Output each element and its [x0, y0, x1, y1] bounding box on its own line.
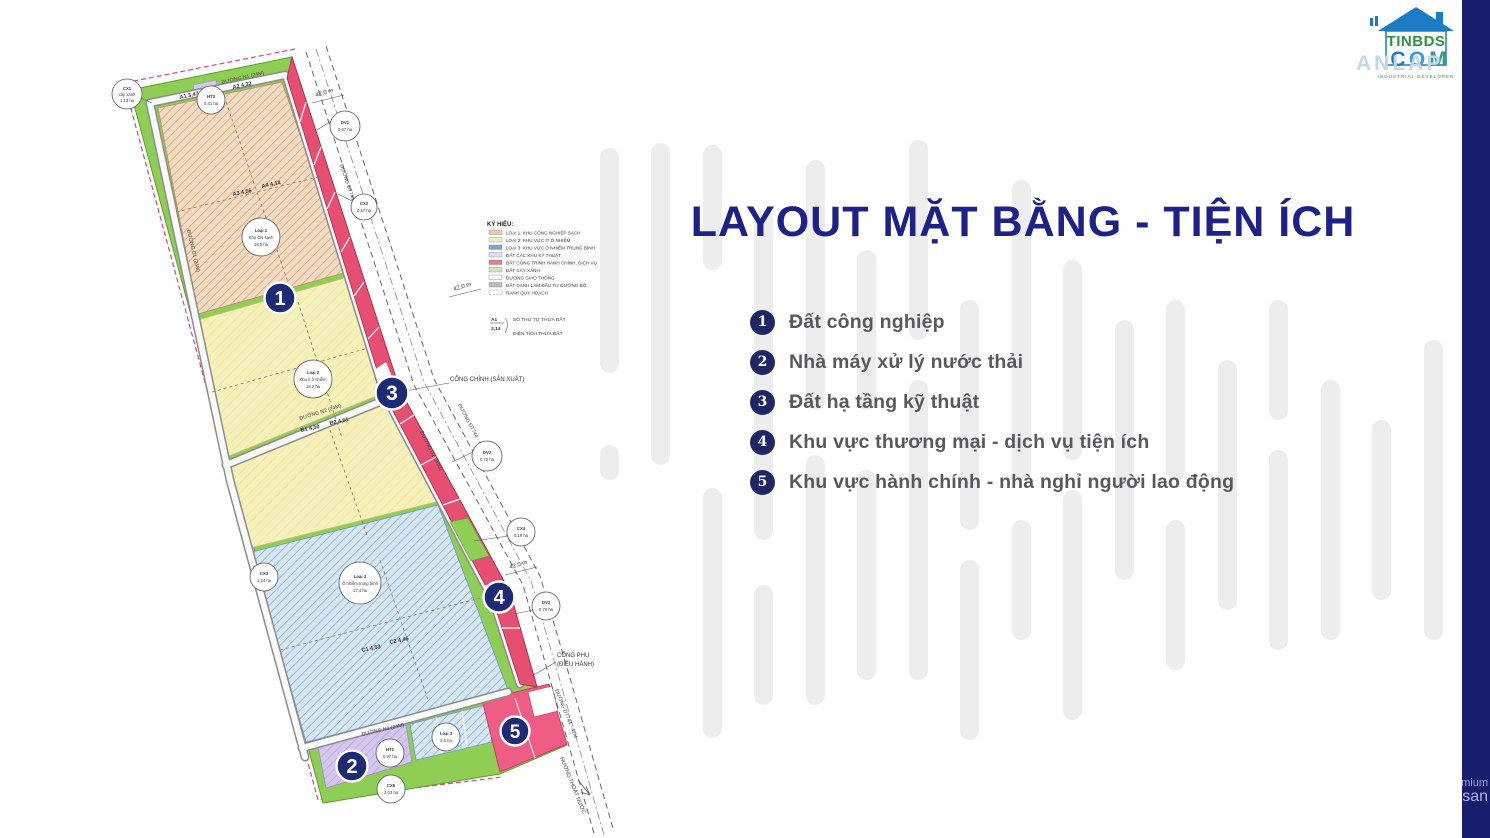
svg-text:CỔNG CHÍNH (SẢN XUẤT): CỔNG CHÍNH (SẢN XUẤT): [450, 376, 524, 383]
svg-text:2: 2: [346, 756, 357, 778]
svg-text:cây xanh: cây xanh: [119, 92, 136, 97]
legend-title: KÝ HIỆU:: [487, 220, 513, 228]
bar: [960, 560, 979, 740]
legend-label: ĐẤT CÂY XANH: [506, 267, 540, 273]
right-navy-bar: [1462, 0, 1490, 838]
bar: [703, 488, 722, 738]
zone-circle-type1: Loại 1 Khu CN sạch 18,5 ha: [242, 218, 280, 256]
svg-text:Loại 2: Loại 2: [307, 370, 320, 375]
list-label: Khu vực thương mại - dịch vụ tiện ích: [789, 431, 1149, 454]
legend-swatch: [489, 253, 502, 258]
svg-text:0,67 ha: 0,67 ha: [338, 127, 353, 132]
svg-text:Loại 3: Loại 3: [354, 574, 367, 579]
map-marker-1: 1: [263, 281, 297, 315]
list-bullet-4: 4: [750, 430, 775, 455]
svg-text:HT3: HT3: [207, 94, 216, 99]
svg-text:CX3: CX3: [260, 571, 269, 576]
callout-dv3: DV3 0,70 ha: [532, 592, 560, 620]
svg-text:DV3: DV3: [542, 600, 551, 605]
page-title: LAYOUT MẶT BẰNG - TIỆN ÍCH: [668, 198, 1378, 247]
svg-text:3,14: 3,14: [491, 326, 501, 332]
svg-text:17,4 ha: 17,4 ha: [353, 588, 368, 593]
list-item: 2 Nhà máy xử lý nước thải: [750, 350, 1234, 374]
tinbds-logo: ANLAP TINBDS C O M INDUSTRIAL DEVELOPER: [1366, 4, 1470, 92]
callout-cx1: CX1 cây xanh 1,13 ha: [112, 79, 142, 109]
map-marker-5: 5: [499, 715, 531, 747]
svg-text:2,03 ha: 2,03 ha: [384, 790, 399, 795]
map-legend: KÝ HIỆU: LOẠI 1: KHU CÔNG NGHIỆP SẠCH LO…: [487, 220, 597, 337]
svg-text:1,24 ha: 1,24 ha: [257, 578, 272, 583]
legend-label: LOẠI 3: KHU VỰC Ô NHIỄM TRUNG BÌNH: [506, 244, 595, 250]
callout-cx5: CX5 2,03 ha: [377, 775, 405, 803]
svg-text:Ô nhiễm trung bình: Ô nhiễm trung bình: [342, 581, 379, 586]
list-item: 4 Khu vực thương mại - dịch vụ tiện ích: [750, 430, 1234, 454]
svg-text:1: 1: [274, 288, 285, 310]
list-bullet-5: 5: [750, 470, 775, 495]
slide: A1 3,47 A2 4,32 A3 4,56 A4 4,14 B1 4,50 …: [0, 0, 1490, 838]
callout-ht3: HT3 0,41 ha: [197, 86, 225, 114]
bar: [1424, 340, 1443, 640]
legend-swatch: [489, 230, 502, 235]
bar: [754, 585, 773, 705]
map-marker-3: 3: [374, 375, 410, 411]
svg-text:0,57 ha: 0,57 ha: [357, 208, 372, 213]
svg-text:Loại 1: Loại 1: [255, 228, 268, 233]
callout-type3-small: Loại 3 2,5 ha: [432, 723, 460, 751]
legend-label: LOẠI 1: KHU CÔNG NGHIỆP SẠCH: [506, 228, 580, 235]
bar: [1166, 520, 1185, 670]
legend-label: ĐƯỜNG GIAO THÔNG: [506, 274, 555, 280]
svg-text:CX1: CX1: [123, 86, 132, 91]
callout-cx3: CX3 1,24 ha: [250, 563, 278, 591]
svg-text:18,2 ha: 18,2 ha: [306, 384, 321, 389]
svg-text:(ĐIỀU HÀNH): (ĐIỀU HÀNH): [557, 661, 594, 668]
svg-text:42,0 m: 42,0 m: [453, 282, 472, 293]
list-label: Nhà máy xử lý nước thải: [789, 351, 1023, 374]
watermark-line: san: [1461, 789, 1488, 806]
svg-text:18,5 ha: 18,5 ha: [254, 242, 269, 247]
callout-cx2: CX2 0,57 ha: [351, 194, 377, 220]
legend-label: RANH QUY HOẠCH: [506, 290, 548, 295]
callout-ht1: HT1 0,97 ha: [376, 739, 404, 767]
drain-arrow: [578, 780, 590, 795]
svg-text:2,5 ha: 2,5 ha: [440, 738, 452, 743]
legend-swatch: [489, 290, 502, 295]
legend-note: A1 3,14 SỐ THỨ TỰ THỬA ĐẤT DIỆN TÍCH THỬ…: [490, 316, 566, 337]
svg-text:3: 3: [386, 382, 398, 405]
list-label: Khu vực hành chính - nhà nghỉ người lao …: [789, 471, 1234, 494]
list-item: 5 Khu vực hành chính - nhà nghỉ người la…: [750, 470, 1234, 494]
callout-cx4: CX4 0,19 ha: [507, 518, 535, 546]
legend-label: ĐẤT CÔNG TRÌNH HÀNH CHÍNH, DỊCH VỤ: [506, 259, 597, 265]
bar: [1012, 520, 1031, 640]
svg-text:5: 5: [510, 722, 521, 743]
svg-text:42,0 m: 42,0 m: [509, 560, 528, 571]
legend-label: ĐẤT DÀNH LÀM ĐẦU TƯ ĐƯỜNG BỘ: [506, 282, 587, 288]
svg-text:0,19 ha: 0,19 ha: [514, 533, 529, 538]
svg-text:CX5: CX5: [387, 783, 396, 788]
legend-swatch: [489, 260, 502, 265]
legend-label: LOẠI 2: KHU VỰC ÍT Ô NHIỄM: [506, 237, 571, 243]
svg-text:0,70 ha: 0,70 ha: [539, 607, 554, 612]
legend-swatch: [489, 268, 502, 273]
list-label: Đất hạ tầng kỹ thuật: [789, 391, 979, 414]
bar: [1321, 380, 1340, 640]
svg-text:0,97 ha: 0,97 ha: [383, 754, 398, 759]
svg-text:SỐ THỨ TỰ THỬA ĐẤT: SỐ THỨ TỰ THỬA ĐẤT: [513, 316, 566, 323]
site-plan-map: A1 3,47 A2 4,32 A3 4,56 A4 4,14 B1 4,50 …: [0, 0, 660, 838]
legend-swatch: [489, 245, 502, 250]
svg-text:4: 4: [493, 587, 505, 609]
map-marker-4: 4: [482, 580, 516, 614]
list-item: 1 Đất công nghiệp: [750, 310, 1234, 334]
logo-svg: TINBDS C O M INDUSTRIAL DEVELOPER: [1366, 4, 1470, 92]
legend-swatch: [489, 283, 502, 288]
list-bullet-1: 1: [750, 310, 775, 335]
svg-text:CX2: CX2: [360, 201, 369, 206]
legend-swatch: [489, 238, 502, 243]
list-item: 3 Đất hạ tầng kỹ thuật: [750, 390, 1234, 414]
callout-dv2: DV2 0,72 ha: [472, 441, 502, 471]
logo-backdrop-text: ANLAP: [1356, 52, 1443, 76]
svg-text:1,13 ha: 1,13 ha: [120, 98, 135, 103]
svg-text:Khu ít ô nhiễm: Khu ít ô nhiễm: [299, 377, 327, 382]
svg-text:CỔNG PHỤ: CỔNG PHỤ: [557, 652, 589, 659]
svg-text:DV1: DV1: [341, 120, 350, 125]
svg-text:DV2: DV2: [483, 450, 492, 455]
svg-text:A1: A1: [491, 317, 497, 323]
bar: [1269, 450, 1288, 650]
svg-text:0,72 ha: 0,72 ha: [480, 457, 495, 462]
callout-dv1: DV1 0,67 ha: [330, 111, 360, 141]
svg-text:0,41 ha: 0,41 ha: [204, 101, 219, 106]
zone-circle-type3: Loại 3 Ô nhiễm trung bình 17,4 ha: [339, 562, 381, 604]
svg-text:DIỆN TÍCH THỬA ĐẤT: DIỆN TÍCH THỬA ĐẤT: [513, 329, 563, 337]
bar: [1372, 420, 1391, 600]
drain-label: HƯỚNG THOÁT NƯỚC: [558, 756, 587, 815]
list-bullet-2: 2: [750, 350, 775, 375]
legend-label: ĐẤT CÁC KHU KỸ THUẬT: [506, 252, 561, 258]
legend-swatch: [489, 275, 502, 280]
list-label: Đất công nghiệp: [789, 311, 945, 334]
zone-circle-type2: Loại 2 Khu ít ô nhiễm 18,2 ha: [294, 360, 332, 398]
svg-text:Loại 3: Loại 3: [440, 731, 453, 736]
bar: [1063, 490, 1082, 720]
map-marker-2: 2: [335, 749, 369, 783]
svg-text:CX4: CX4: [517, 526, 526, 531]
feature-list: 1 Đất công nghiệp 2 Nhà máy xử lý nước t…: [750, 310, 1234, 510]
corner-watermark: mium san: [1461, 778, 1488, 806]
list-bullet-3: 3: [750, 390, 775, 415]
bar: [1269, 300, 1288, 420]
svg-text:Khu CN sạch: Khu CN sạch: [249, 235, 274, 240]
svg-text:HT1: HT1: [386, 747, 395, 752]
site-plan-svg: A1 3,47 A2 4,32 A3 4,56 A4 4,14 B1 4,50 …: [0, 0, 660, 838]
